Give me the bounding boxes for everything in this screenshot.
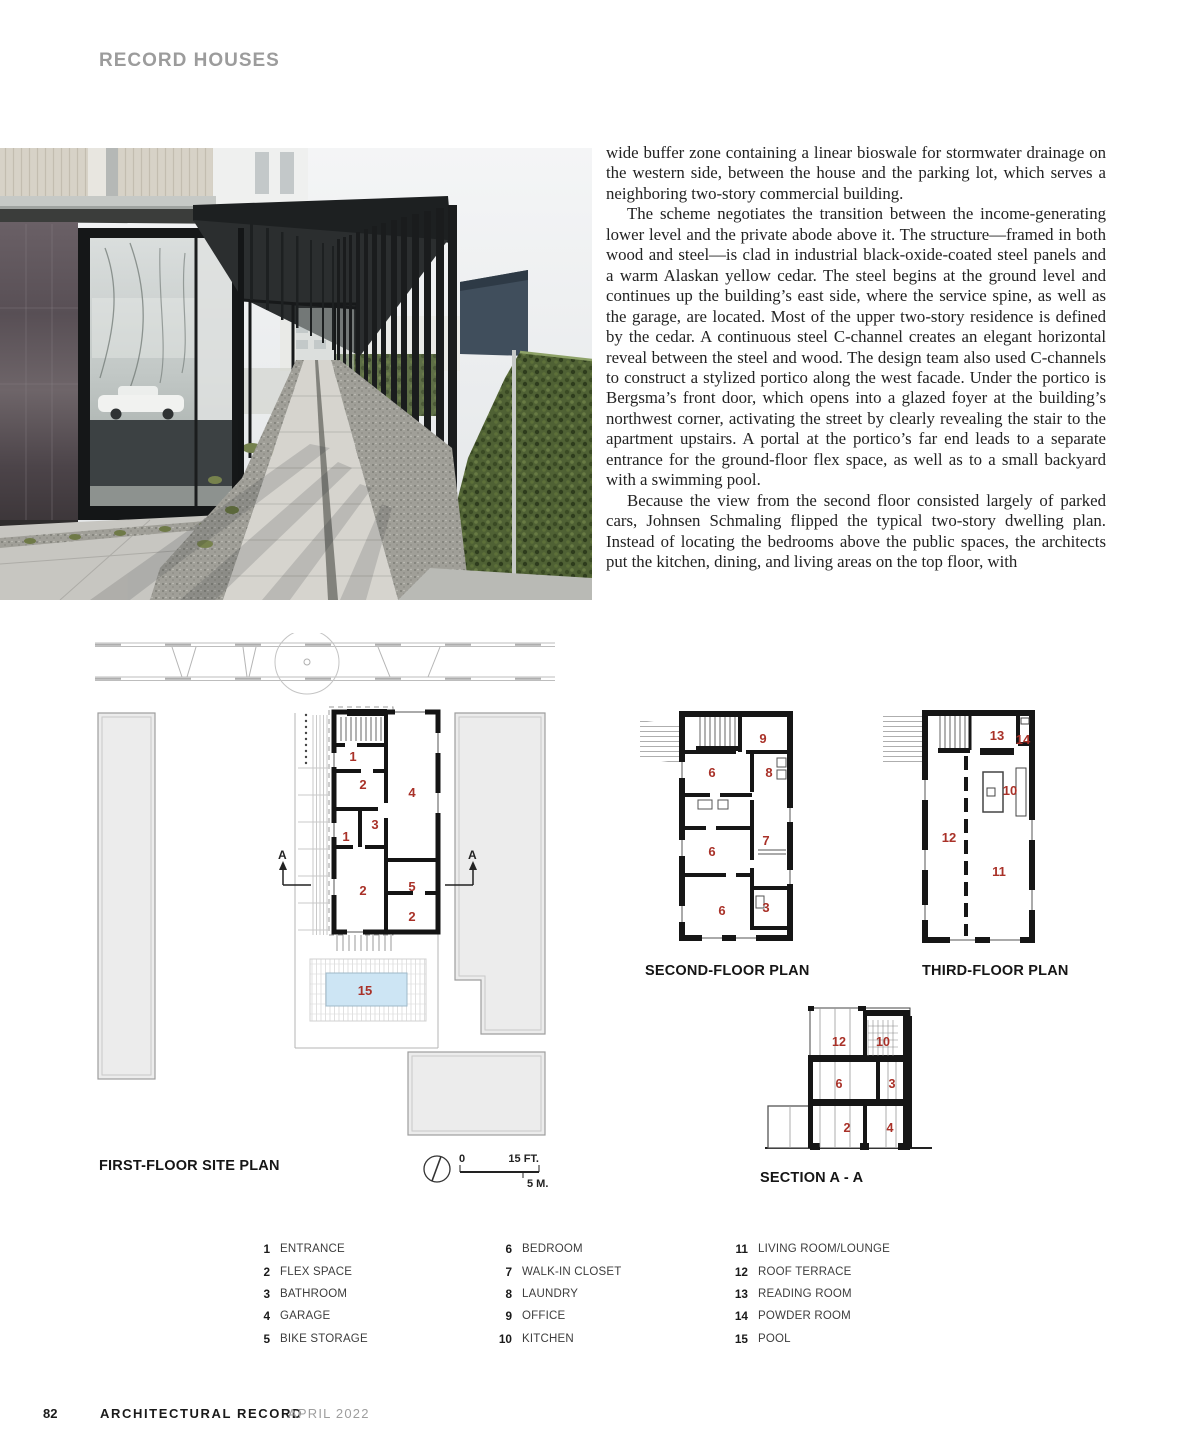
room-label: 2 bbox=[359, 777, 366, 792]
legend-item: 7WALK-IN CLOSET bbox=[492, 1260, 622, 1282]
scale-feet: 15 FT. bbox=[508, 1153, 539, 1165]
street-lines bbox=[95, 643, 555, 681]
legend-item: 14POWDER ROOM bbox=[728, 1305, 890, 1327]
room-label: 5 bbox=[408, 879, 415, 894]
legend-item: 13READING ROOM bbox=[728, 1283, 890, 1305]
room-label: 14 bbox=[1016, 732, 1031, 747]
paragraph: Because the view from the second floor c… bbox=[606, 491, 1106, 573]
house-photo bbox=[0, 148, 592, 600]
legend-item: 2FLEX SPACE bbox=[250, 1260, 368, 1282]
room-label: 1 bbox=[342, 829, 349, 844]
legend-column-2: 6BEDROOM 7WALK-IN CLOSET 8LAUNDRY 9OFFIC… bbox=[492, 1238, 622, 1350]
page-number: 82 bbox=[43, 1406, 57, 1421]
steel-facade bbox=[0, 222, 78, 528]
room-label: 10 bbox=[1003, 783, 1017, 798]
north-compass-icon bbox=[424, 1156, 450, 1182]
exterior-stair bbox=[883, 716, 925, 766]
footer-issue: APRIL 2022 bbox=[288, 1406, 370, 1421]
dotted-line bbox=[305, 714, 307, 764]
room-label: 10 bbox=[876, 1035, 890, 1049]
legend-column-1: 1ENTRANCE 2FLEX SPACE 3BATHROOM 4GARAGE … bbox=[250, 1238, 368, 1350]
site-plan: A A 1 2 4 3 1 2 5 2 15 bbox=[95, 633, 555, 1153]
room-label: 3 bbox=[371, 817, 378, 832]
room-label: 6 bbox=[836, 1077, 843, 1091]
site-plan-title: FIRST-FLOOR SITE PLAN bbox=[99, 1158, 280, 1174]
section-title: SECTION A - A bbox=[760, 1170, 863, 1186]
second-floor-plan: 9 6 8 6 7 6 3 bbox=[640, 700, 880, 950]
paragraph: The scheme negotiates the transition bet… bbox=[606, 204, 1106, 490]
legend-item: 12ROOF TERRACE bbox=[728, 1260, 890, 1282]
magazine-page: RECORD HOUSES bbox=[0, 0, 1200, 1450]
room-label: 6 bbox=[708, 844, 715, 859]
room-label: 2 bbox=[408, 909, 415, 924]
tree-canopy bbox=[275, 633, 339, 694]
room-label: 4 bbox=[887, 1121, 894, 1135]
room-label: 12 bbox=[942, 830, 956, 845]
page-title: RECORD HOUSES bbox=[99, 50, 280, 72]
third-floor-plan: 13 14 10 12 11 bbox=[880, 700, 1120, 950]
svg-text:A: A bbox=[468, 848, 477, 862]
room-label: 2 bbox=[844, 1121, 851, 1135]
legend-item: 1ENTRANCE bbox=[250, 1238, 368, 1260]
scale-zero: 0 bbox=[459, 1153, 465, 1165]
legend-item: 3BATHROOM bbox=[250, 1283, 368, 1305]
room-label: 3 bbox=[762, 900, 769, 915]
room-label: 15 bbox=[358, 983, 372, 998]
room-label: 4 bbox=[408, 785, 416, 800]
third-floor-drawing: 13 14 10 12 11 bbox=[880, 700, 1120, 950]
room-label: 3 bbox=[889, 1077, 896, 1091]
footer-magazine: ARCHITECTURAL RECORD bbox=[100, 1406, 303, 1421]
room-label: 12 bbox=[832, 1035, 846, 1049]
legend-item: 5BIKE STORAGE bbox=[250, 1327, 368, 1349]
room-label: 13 bbox=[990, 728, 1004, 743]
driveway-aprons bbox=[172, 647, 440, 677]
legend-item: 15POOL bbox=[728, 1327, 890, 1349]
room-label: 1 bbox=[349, 749, 356, 764]
exterior-stair bbox=[640, 720, 682, 764]
svg-text:A: A bbox=[278, 848, 287, 862]
article-body: wide buffer zone containing a linear bio… bbox=[606, 143, 1106, 573]
legend-column-3: 11LIVING ROOM/LOUNGE 12ROOF TERRACE 13RE… bbox=[728, 1238, 890, 1350]
room-label: 11 bbox=[992, 864, 1006, 879]
room-label: 9 bbox=[759, 731, 766, 746]
legend-item: 9OFFICE bbox=[492, 1305, 622, 1327]
scale-meters: 5 M. bbox=[527, 1178, 548, 1190]
third-plan-title: THIRD-FLOOR PLAN bbox=[922, 963, 1069, 979]
legend-item: 6BEDROOM bbox=[492, 1238, 622, 1260]
legend-item: 11LIVING ROOM/LOUNGE bbox=[728, 1238, 890, 1260]
room-label: 2 bbox=[359, 883, 366, 898]
pole bbox=[512, 350, 516, 598]
site-plan-drawing: A A 1 2 4 3 1 2 5 2 15 bbox=[95, 633, 555, 1153]
legend-item: 4GARAGE bbox=[250, 1305, 368, 1327]
building-outline bbox=[925, 713, 1032, 940]
walkway-paving bbox=[310, 715, 328, 935]
room-label: 6 bbox=[718, 903, 725, 918]
room-label: 6 bbox=[708, 765, 715, 780]
entry-steps bbox=[337, 935, 391, 951]
room-label: 7 bbox=[762, 833, 769, 848]
legend-item: 8LAUNDRY bbox=[492, 1283, 622, 1305]
paragraph: wide buffer zone containing a linear bio… bbox=[606, 143, 1106, 204]
section-aa: 12 10 6 3 2 4 bbox=[760, 1000, 960, 1160]
scale-bar: 0 15 FT. 5 M. bbox=[415, 1147, 555, 1193]
second-floor-drawing: 9 6 8 6 7 6 3 bbox=[640, 700, 880, 950]
house-photo-illustration bbox=[0, 148, 592, 600]
second-plan-title: SECOND-FLOOR PLAN bbox=[645, 963, 810, 979]
legend-item: 10KITCHEN bbox=[492, 1327, 622, 1349]
section-drawing: 12 10 6 3 2 4 bbox=[760, 1000, 960, 1160]
room-label: 8 bbox=[765, 765, 772, 780]
